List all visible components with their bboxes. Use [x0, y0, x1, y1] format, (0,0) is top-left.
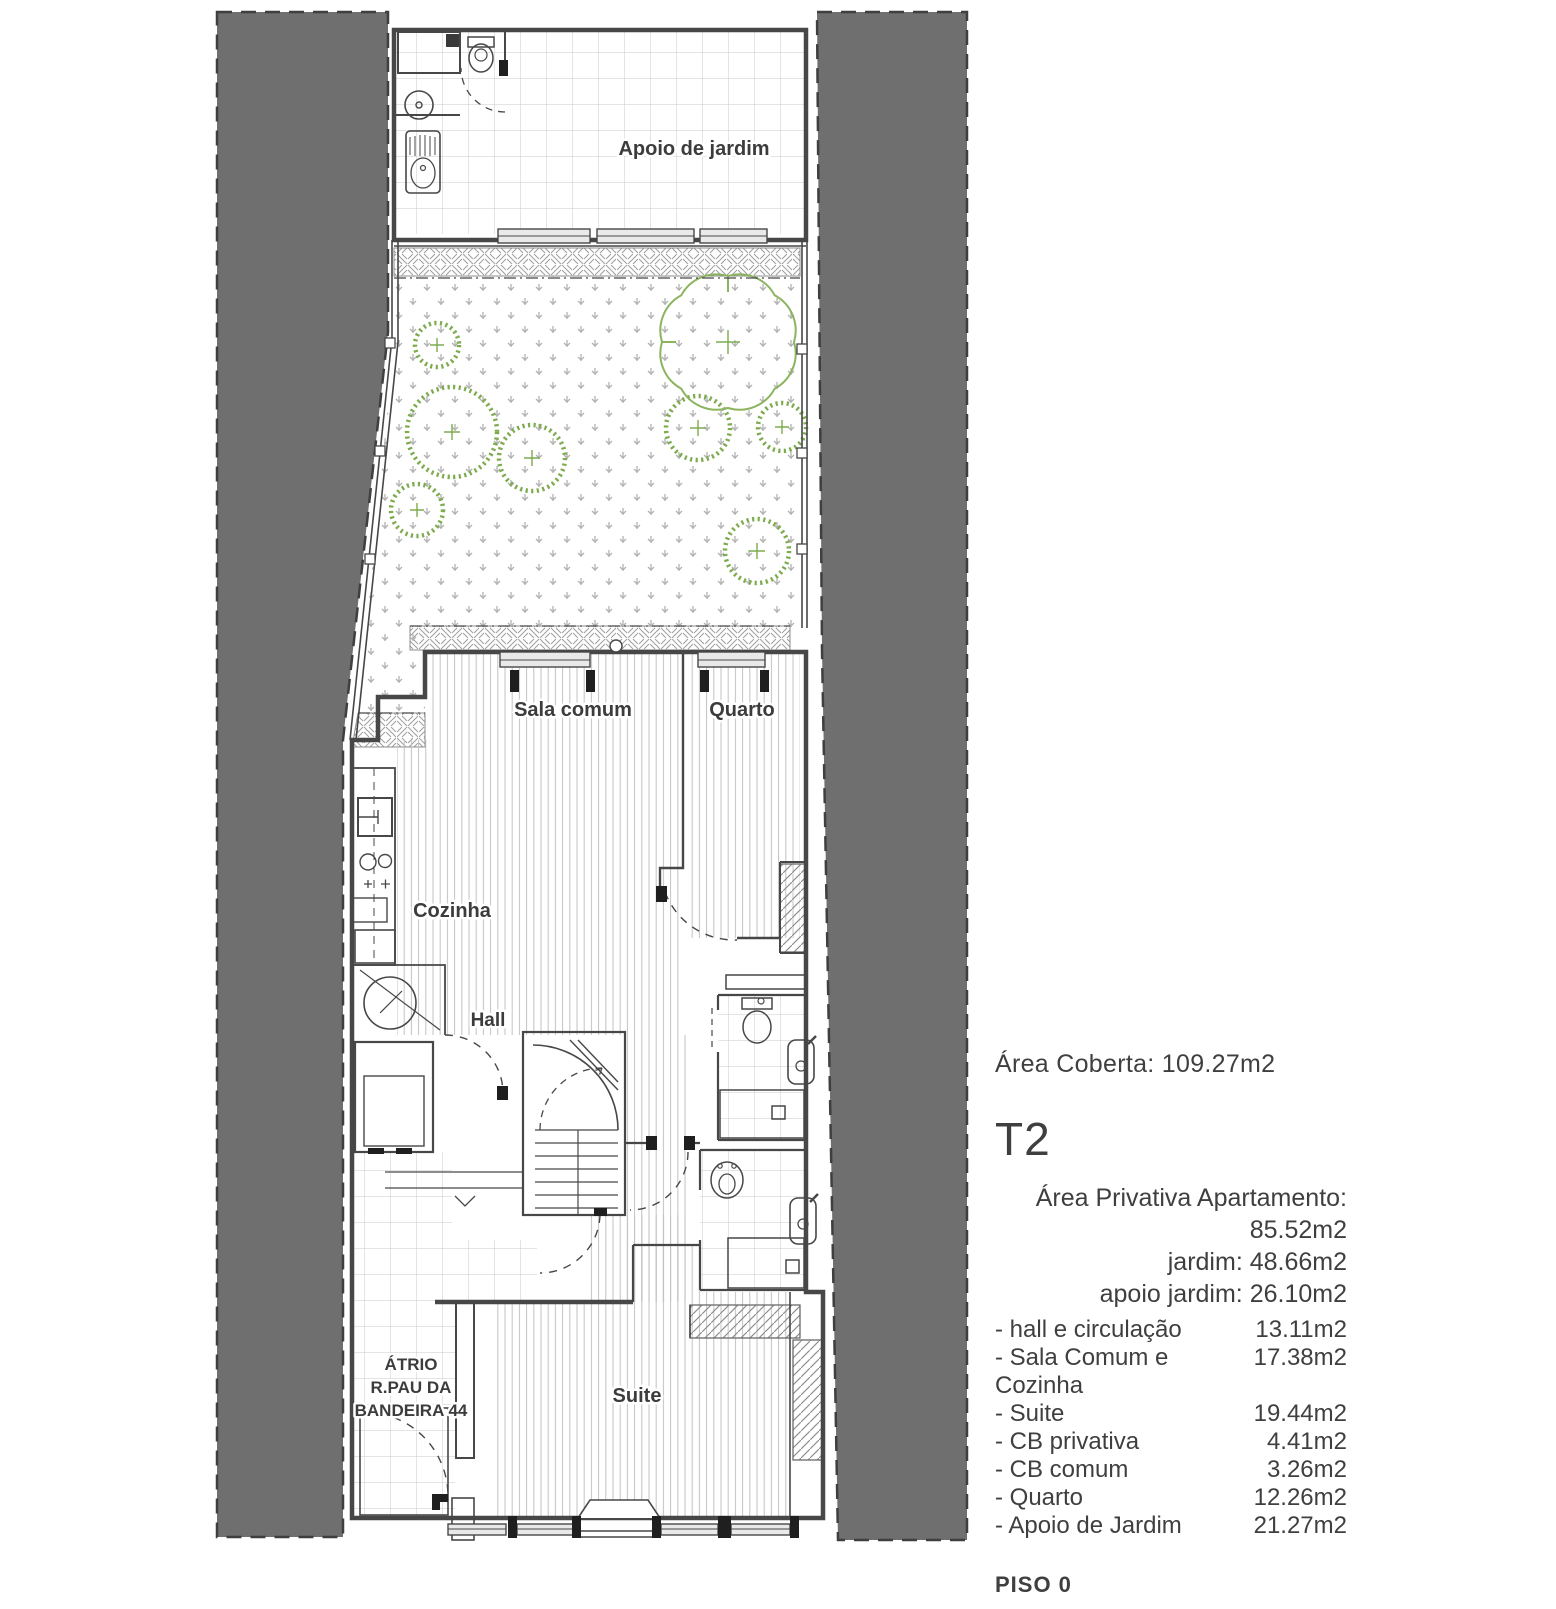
label-apoio-de-jardim: Apoio de jardim: [618, 138, 769, 160]
row-label: - CB comum: [995, 1456, 1128, 1484]
private-area-line: Área Privativa Apartamento: 85.52m2: [995, 1182, 1347, 1246]
neighbor-right: [817, 12, 967, 1540]
row-value: 12.26m2: [1254, 1484, 1347, 1512]
row-label: - Suite: [995, 1400, 1064, 1428]
covered-area-text: Área Coberta: 109.27m2: [995, 1050, 1275, 1079]
row-value: 4.41m2: [1267, 1428, 1347, 1456]
svg-text:R.PAU DA: R.PAU DA: [371, 1378, 452, 1397]
row-value: 21.27m2: [1254, 1512, 1347, 1540]
area-row-sala-cozinha: - Sala Comum e Cozinha 17.38m2: [995, 1344, 1347, 1400]
label-hall: Hall: [471, 1010, 506, 1031]
row-label: - Quarto: [995, 1484, 1083, 1512]
area-row-hall: - hall e circulação 13.11m2: [995, 1316, 1347, 1344]
label-quarto: Quarto: [709, 699, 775, 721]
garden-support-area-line: apoio jardim: 26.10m2: [995, 1278, 1347, 1310]
row-label: - CB privativa: [995, 1428, 1139, 1456]
label-sala-comum: Sala comum: [514, 699, 632, 721]
area-row-quarto: - Quarto 12.26m2: [995, 1484, 1347, 1512]
row-label: - hall e circulação: [995, 1316, 1182, 1344]
row-value: 3.26m2: [1267, 1456, 1347, 1484]
survey-point: [610, 640, 622, 652]
svg-text:BANDEIRA 44: BANDEIRA 44: [355, 1401, 468, 1420]
row-value: 13.11m2: [1255, 1316, 1347, 1344]
area-row-apoio-jardim: - Apoio de Jardim 21.27m2: [995, 1512, 1347, 1540]
area-row-suite: - Suite 19.44m2: [995, 1400, 1347, 1428]
unit-type-title: T2: [995, 1112, 1051, 1166]
floor-finishes: [352, 32, 823, 1518]
svg-text:ÁTRIO: ÁTRIO: [385, 1355, 438, 1374]
row-value: 17.38m2: [1254, 1344, 1347, 1400]
private-areas-block: Área Privativa Apartamento: 85.52m2 jard…: [995, 1182, 1347, 1310]
floorplan-sheet: Apoio de jardim Sala comum Quarto Cozinh…: [0, 0, 1556, 1609]
row-label: - Apoio de Jardim: [995, 1512, 1182, 1540]
area-row-cb-privativa: - CB privativa 4.41m2: [995, 1428, 1347, 1456]
area-row-cb-comum: - CB comum 3.26m2: [995, 1456, 1347, 1484]
floor-title: PISO 0: [995, 1572, 1072, 1598]
garden-area-line: jardim: 48.66m2: [995, 1246, 1347, 1278]
row-value: 19.44m2: [1254, 1400, 1347, 1428]
room-areas-list: - hall e circulação 13.11m2 - Sala Comum…: [995, 1316, 1347, 1540]
label-suite: Suite: [613, 1385, 662, 1407]
label-cozinha: Cozinha: [413, 900, 492, 922]
row-label: - Sala Comum e Cozinha: [995, 1344, 1254, 1400]
